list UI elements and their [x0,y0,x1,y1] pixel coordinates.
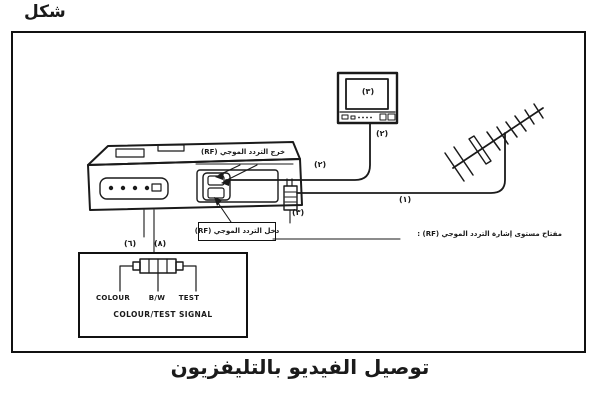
diagram-caption: توصيل الفيديو بالتليفزيون [0,355,600,379]
callout-tv-cable: (٢) [314,160,326,169]
signal-option-test: TEST [176,294,202,302]
scanned-manual-page: { "figure_label": "شكل", "caption": "توص… [0,0,600,405]
rf-output-label: خرج التردد الموجي (RF) [191,149,295,157]
rf-signal-level-switch-label: مفتاح مستوى إشارة التردد الموجي (RF) : [398,231,562,239]
rf-input-label: دخل التردد الموجي (RF) [198,222,276,241]
callout-panel-left: (٦) [124,239,136,248]
callout-antenna-cable: (١) [399,195,411,204]
signal-box-title: COLOUR/TEST SIGNAL [88,310,238,319]
signal-option-colour: COLOUR [94,294,132,302]
figure-label: شكل [24,2,66,22]
callout-tv-screen: (٣) [358,87,378,96]
callout-plug: (٣) [292,208,304,217]
callout-tv-terminal: (٢) [376,129,388,138]
callout-panel-right: (٨) [154,239,166,248]
signal-option-bw: B/W [146,294,168,302]
